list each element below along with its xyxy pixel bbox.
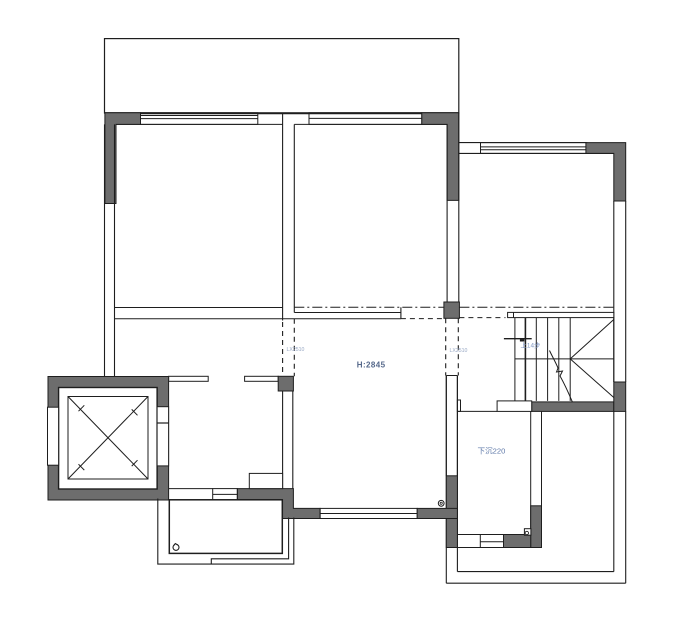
svg-text:下沉220: 下沉220 [478,447,506,456]
svg-text:LX2510: LX2510 [450,348,468,354]
svg-text:LX2510: LX2510 [287,347,305,353]
svg-text:H:2845: H:2845 [357,361,386,370]
svg-text:上14步: 上14步 [521,341,541,350]
